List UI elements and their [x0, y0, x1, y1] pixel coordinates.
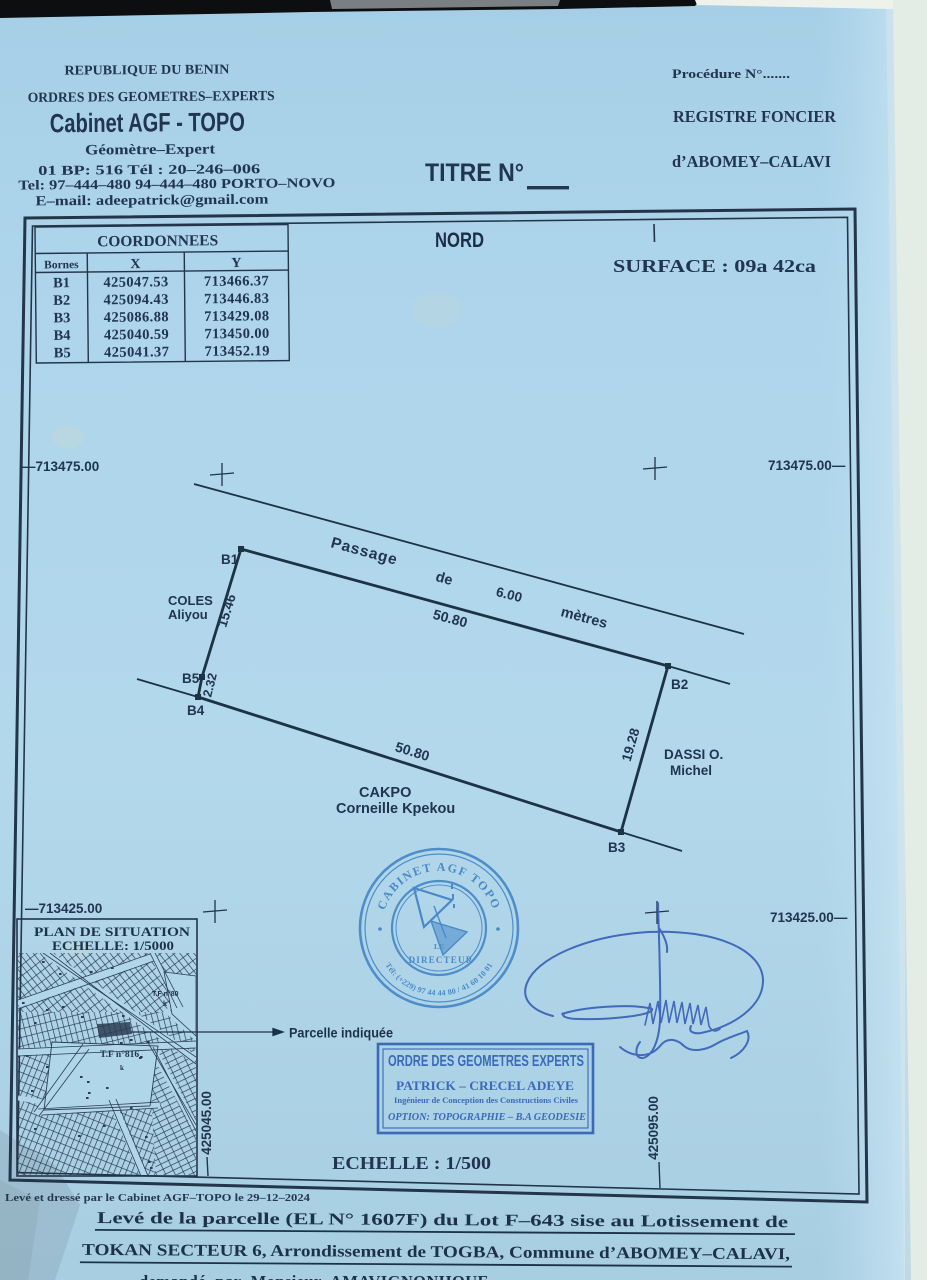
- svg-text:713429.08: 713429.08: [204, 308, 269, 325]
- svg-text:B3: B3: [53, 310, 70, 326]
- svg-text:T.F n°816: T.F n°816: [100, 1049, 139, 1060]
- svg-text:425095.00: 425095.00: [646, 1096, 661, 1160]
- svg-text:COLES: COLES: [168, 593, 213, 608]
- svg-text:425045.00: 425045.00: [199, 1091, 214, 1155]
- svg-text:425086.88: 425086.88: [104, 309, 169, 326]
- svg-text:k: k: [120, 1064, 124, 1072]
- svg-text:LE: LE: [434, 942, 444, 951]
- svg-text:X: X: [130, 257, 140, 272]
- svg-text:PLAN DE SITUATION: PLAN DE SITUATION: [34, 924, 191, 939]
- svg-text:Ingénieur de Conception des Co: Ingénieur de Conception des Construction…: [394, 1095, 579, 1105]
- svg-text:713475.00—: 713475.00—: [768, 458, 846, 473]
- svg-text:PATRICK – CRECEL ADEYE: PATRICK – CRECEL ADEYE: [396, 1078, 574, 1093]
- svg-text:Michel: Michel: [670, 763, 712, 778]
- svg-text:713452.19: 713452.19: [205, 343, 270, 360]
- svg-text:demandé par Monsieur AMAVIGNON: demandé par Monsieur AMAVIGNONHOUE: [139, 1272, 489, 1280]
- svg-text:713450.00: 713450.00: [204, 326, 269, 343]
- svg-text:B4: B4: [187, 703, 205, 718]
- svg-text:Levé et dressé par le Cabinet: Levé et dressé par le Cabinet AGF–TOPO l…: [5, 1193, 310, 1204]
- svg-text:425047.53: 425047.53: [103, 274, 168, 291]
- svg-text:Procédure N°.......: Procédure N°.......: [672, 66, 790, 81]
- svg-text:ECHELLE: 1/5000: ECHELLE: 1/5000: [52, 939, 174, 953]
- svg-text:Corneille Kpekou: Corneille Kpekou: [336, 801, 455, 817]
- svg-text:425041.37: 425041.37: [104, 344, 169, 361]
- svg-text:—713425.00: —713425.00: [25, 901, 102, 916]
- svg-text:Cabinet AGF - TOPO: Cabinet AGF - TOPO: [50, 107, 245, 139]
- svg-text:B5: B5: [54, 345, 71, 361]
- svg-text:Bornes: Bornes: [44, 259, 79, 271]
- svg-text:Y: Y: [231, 256, 241, 271]
- svg-text:TITRE N°: TITRE N°: [425, 159, 524, 187]
- svg-text:k: k: [163, 1001, 167, 1008]
- svg-text:DASSI O.: DASSI O.: [664, 747, 723, 762]
- svg-text:Aliyou: Aliyou: [168, 607, 208, 622]
- svg-text:B2: B2: [53, 293, 70, 309]
- svg-text:B2: B2: [671, 677, 688, 692]
- svg-text:d’ABOMEY–CALAVI: d’ABOMEY–CALAVI: [672, 152, 831, 171]
- svg-text:DIRECTEUR: DIRECTEUR: [409, 955, 474, 965]
- svg-text:B1: B1: [221, 552, 239, 567]
- svg-text:COORDONNEES: COORDONNEES: [97, 232, 218, 250]
- svg-text:Parcelle indiquée: Parcelle indiquée: [289, 1026, 393, 1041]
- svg-text:713466.37: 713466.37: [204, 273, 269, 290]
- svg-text:ORDRES DES GEOMETRES–EXPERTS: ORDRES DES GEOMETRES–EXPERTS: [28, 89, 275, 106]
- svg-text:425094.43: 425094.43: [104, 292, 169, 309]
- svg-text:713425.00—: 713425.00—: [770, 910, 848, 925]
- svg-text:425040.59: 425040.59: [104, 327, 169, 344]
- svg-text:Géomètre–Expert: Géomètre–Expert: [85, 141, 215, 158]
- svg-text:NORD: NORD: [435, 229, 484, 252]
- svg-text:ECHELLE : 1/500: ECHELLE : 1/500: [332, 1153, 491, 1173]
- svg-text:ORDRE DES GEOMETRES EXPERTS: ORDRE DES GEOMETRES EXPERTS: [388, 1053, 584, 1070]
- svg-text:B1: B1: [53, 275, 70, 291]
- svg-text:B4: B4: [54, 328, 71, 344]
- svg-text:T.F n°80: T.F n°80: [152, 990, 179, 998]
- svg-text:B3: B3: [608, 840, 626, 855]
- svg-text:—713475.00: —713475.00: [22, 459, 99, 474]
- svg-text:REPUBLIQUE DU BENIN: REPUBLIQUE DU BENIN: [64, 61, 229, 77]
- svg-text:Tel: 97–444–480 94–444–480 POR: Tel: 97–444–480 94–444–480 PORTO–NOVO: [18, 175, 335, 192]
- svg-text:REGISTRE FONCIER: REGISTRE FONCIER: [673, 107, 837, 126]
- svg-text:CAKPO: CAKPO: [359, 785, 411, 801]
- svg-text:B5: B5: [182, 671, 200, 686]
- svg-text:E–mail: adeepatrick@gmail.com: E–mail: adeepatrick@gmail.com: [35, 193, 269, 210]
- svg-text:OPTION: TOPOGRAPHIE – B.A GEOD: OPTION: TOPOGRAPHIE – B.A GEODESIE: [388, 1111, 586, 1123]
- svg-text:SURFACE : 09a 42ca: SURFACE : 09a 42ca: [613, 256, 816, 276]
- svg-text:713446.83: 713446.83: [204, 291, 269, 308]
